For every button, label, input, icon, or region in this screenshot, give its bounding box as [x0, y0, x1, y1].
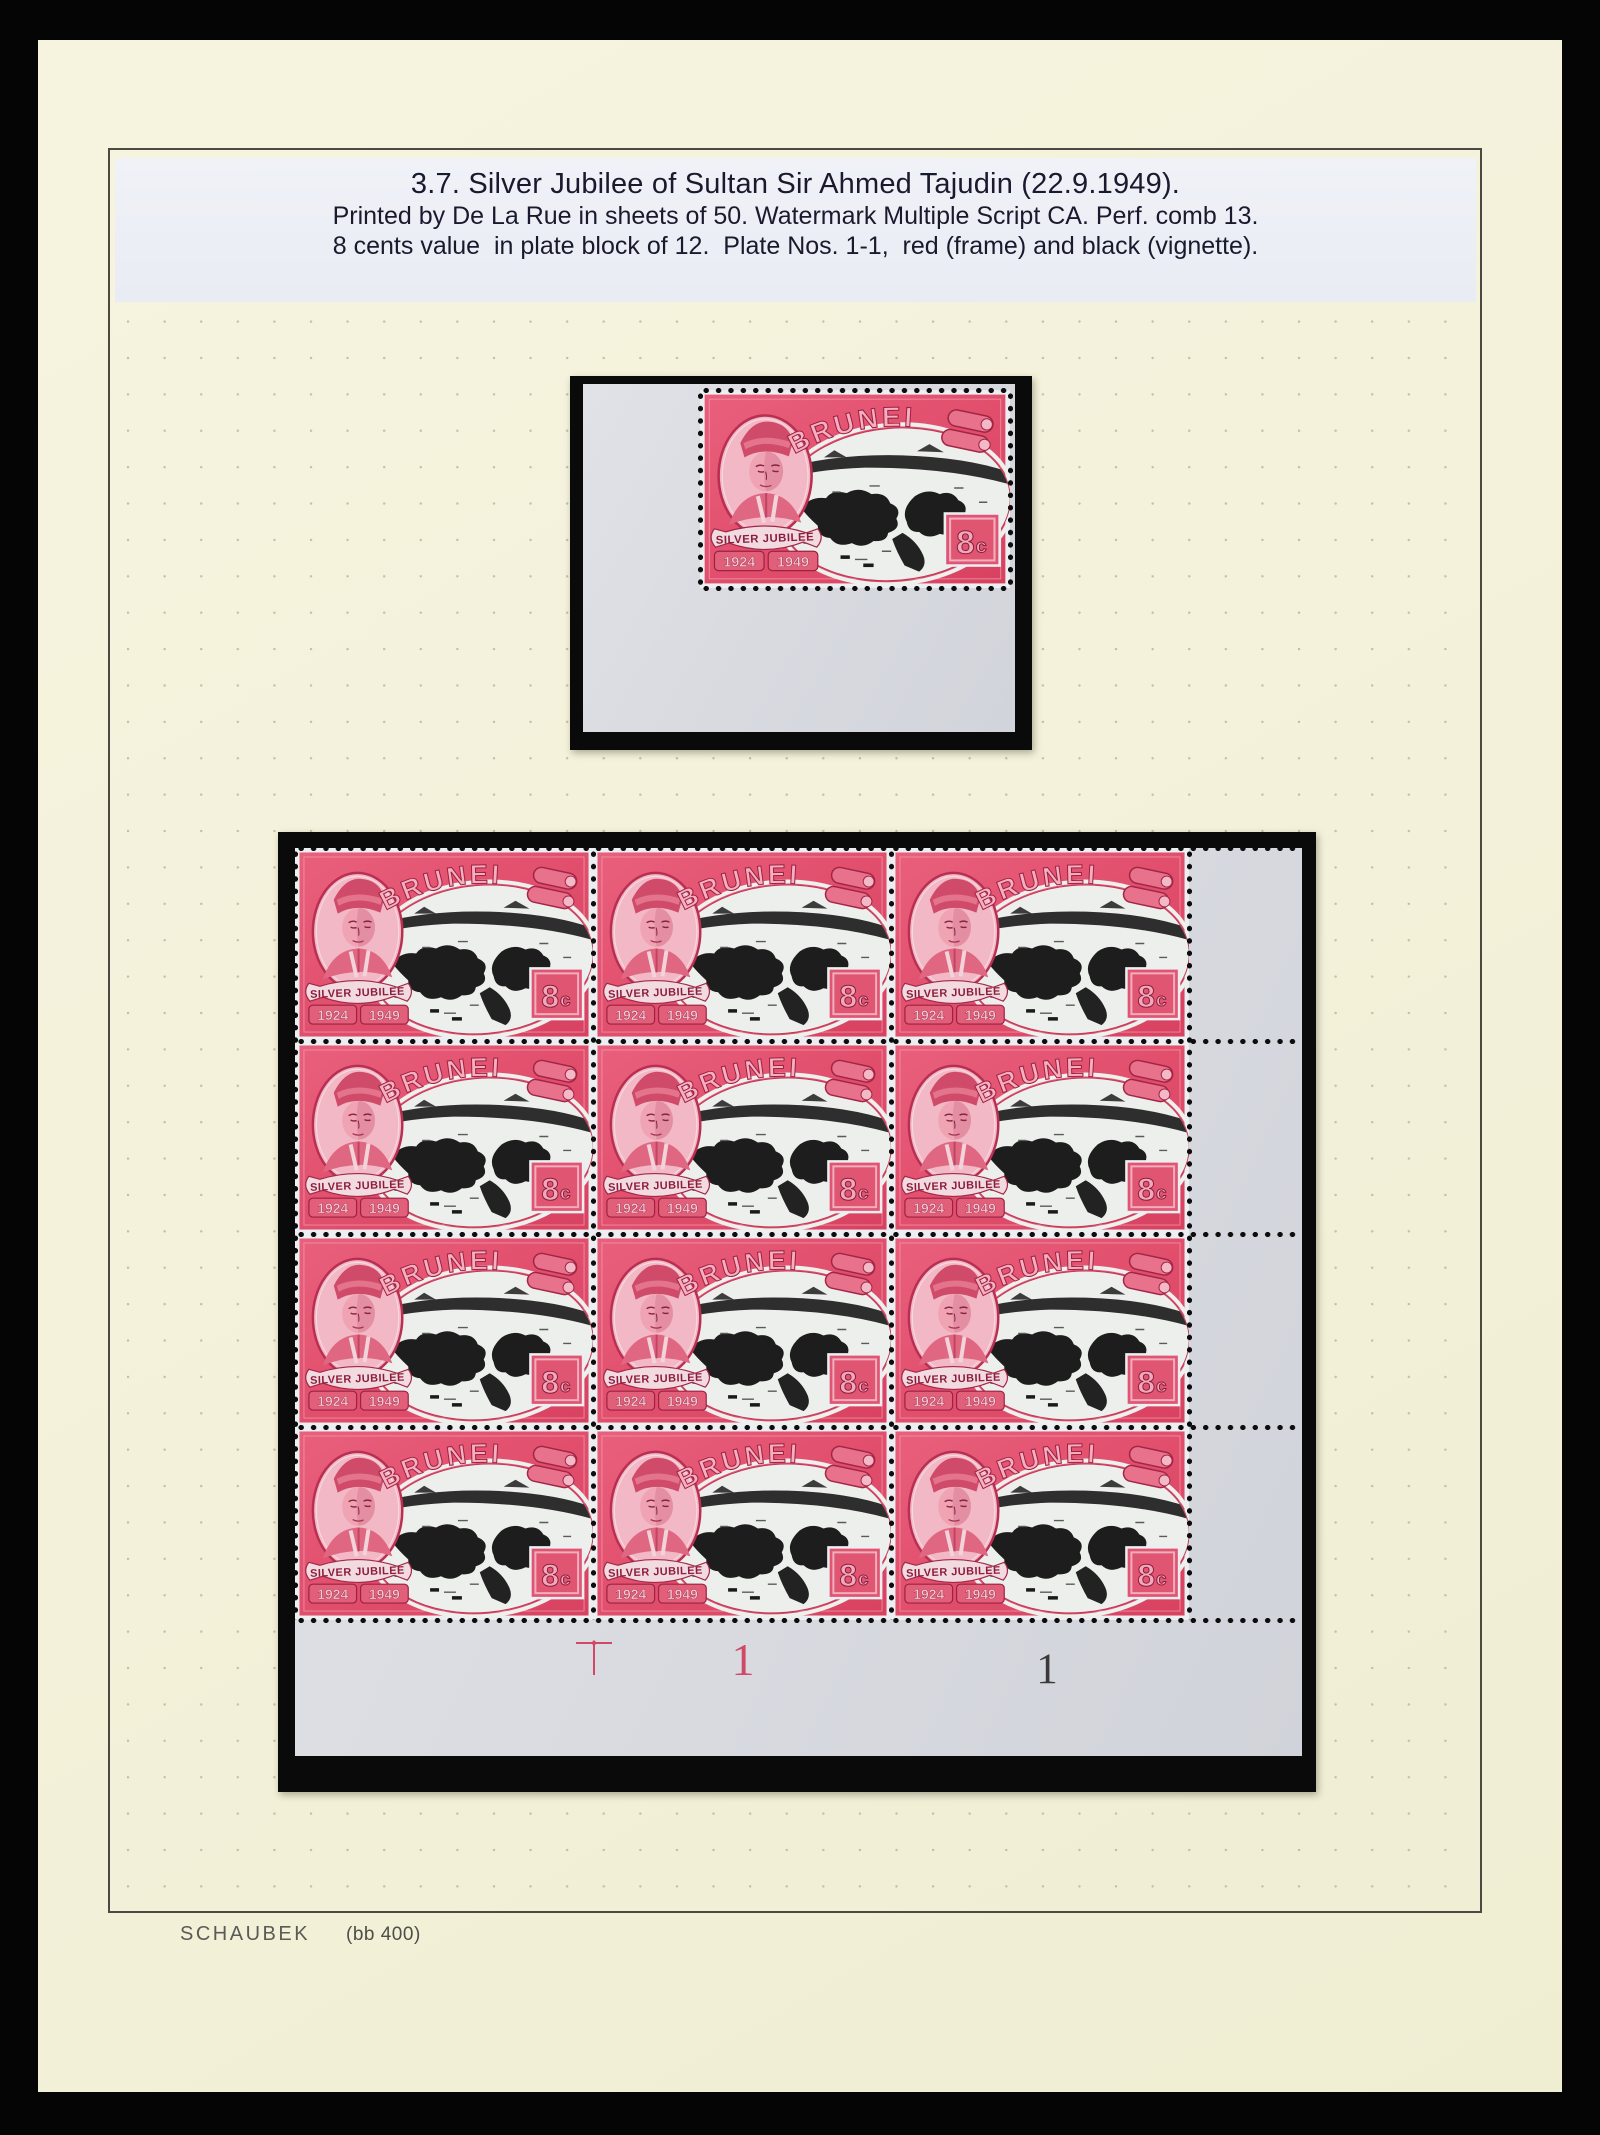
value-box: 8c: [828, 1161, 881, 1212]
plate-block-stamp: BRUNEI SILVER JUBILEE 1924 1949 8c: [593, 1234, 891, 1427]
brunei-silver-jubilee-stamp: BRUNEI SILVER JUBILEE 1924 1949 8c: [593, 1234, 891, 1427]
brunei-silver-jubilee-stamp: BRUNEI SILVER JUBILEE 1924 1949 8c: [891, 1427, 1189, 1620]
header-subtitle-line2: 8 cents value in plate block of 12. Plat…: [115, 231, 1476, 261]
guide-cross-mark: [572, 1631, 616, 1677]
value-box: 8c: [1126, 1161, 1179, 1212]
brunei-silver-jubilee-stamp: BRUNEI SILVER JUBILEE 1924 1949 8c: [295, 1234, 593, 1427]
page-title: 3.7. Silver Jubilee of Sultan Sir Ahmed …: [115, 168, 1476, 201]
single-stamp-mount: BRUNEI SILVER JUBILEE 1924 1949 8c: [570, 376, 1032, 750]
plate-block-stamp: BRUNEI SILVER JUBILEE 1924 1949 8c: [295, 1427, 593, 1620]
album-page: 3.7. Silver Jubilee of Sultan Sir Ahmed …: [38, 40, 1562, 2092]
stamp-year-left: 1924: [615, 1200, 646, 1216]
plate-block-stamp: BRUNEI SILVER JUBILEE 1924 1949 8c: [891, 848, 1189, 1041]
stamp-year-left: 1924: [615, 1007, 646, 1023]
stamp-year-right: 1949: [965, 1200, 996, 1216]
plate-block-stamp: BRUNEI SILVER JUBILEE 1924 1949 8c: [593, 848, 891, 1041]
single-stamp-selvage: BRUNEI SILVER JUBILEE 1924 1949 8c: [583, 384, 1015, 732]
brunei-silver-jubilee-stamp: BRUNEI SILVER JUBILEE 1924 1949 8c: [891, 848, 1189, 1041]
plate-block-stamp: BRUNEI SILVER JUBILEE 1924 1949 8c: [593, 1041, 891, 1234]
stamp-year-left: 1924: [317, 1393, 348, 1409]
value-box: 8c: [1126, 1547, 1179, 1598]
plate-block-stamp: BRUNEI SILVER JUBILEE 1924 1949 8c: [593, 1427, 891, 1620]
value-box: 8c: [1126, 968, 1179, 1019]
brunei-silver-jubilee-stamp: BRUNEI SILVER JUBILEE 1924 1949 8c: [295, 848, 593, 1041]
value-box: 8c: [530, 1161, 583, 1212]
stamp-year-left: 1924: [615, 1393, 646, 1409]
value-box: 8c: [530, 1547, 583, 1598]
stamp-year-right: 1949: [777, 555, 809, 571]
brunei-silver-jubilee-stamp: BRUNEI SILVER JUBILEE 1924 1949 8c: [593, 848, 891, 1041]
value-box: 8c: [828, 1547, 881, 1598]
brunei-silver-jubilee-stamp: BRUNEI SILVER JUBILEE 1924 1949 8c: [891, 1234, 1189, 1427]
value-box: 8c: [1126, 1354, 1179, 1405]
brunei-silver-jubilee-stamp: BRUNEI SILVER JUBILEE 1924 1949 8c: [295, 1427, 593, 1620]
plate-block-stamp: BRUNEI SILVER JUBILEE 1924 1949 8c: [891, 1234, 1189, 1427]
stamp-year-right: 1949: [965, 1586, 996, 1602]
stamp-year-right: 1949: [667, 1586, 698, 1602]
brunei-silver-jubilee-stamp: BRUNEI SILVER JUBILEE 1924 1949 8c: [700, 390, 1010, 588]
stamp-year-left: 1924: [317, 1200, 348, 1216]
brunei-silver-jubilee-stamp: BRUNEI SILVER JUBILEE 1924 1949 8c: [891, 1041, 1189, 1234]
stamp-year-right: 1949: [369, 1586, 400, 1602]
stamp-year-left: 1924: [913, 1393, 944, 1409]
stamp-year-left: 1924: [723, 555, 755, 571]
value-box: 8c: [530, 1354, 583, 1405]
plate-block-paper: BRUNEI SILVER JUBILEE 1924 1949 8c: [295, 848, 1302, 1756]
stamp-year-right: 1949: [965, 1007, 996, 1023]
album-brand-label: SCHAUBEK: [180, 1923, 310, 1946]
header-label-box: 3.7. Silver Jubilee of Sultan Sir Ahmed …: [115, 158, 1476, 302]
header-subtitle-line1: Printed by De La Rue in sheets of 50. Wa…: [115, 201, 1476, 231]
album-ref-label: (bb 400): [346, 1924, 421, 1946]
stamp-year-left: 1924: [317, 1586, 348, 1602]
page-frame: 3.7. Silver Jubilee of Sultan Sir Ahmed …: [108, 148, 1482, 1913]
plate-number-red: 1: [725, 1637, 761, 1683]
stamp-year-left: 1924: [317, 1007, 348, 1023]
stamp-year-left: 1924: [913, 1007, 944, 1023]
plate-block-stamp: BRUNEI SILVER JUBILEE 1924 1949 8c: [891, 1427, 1189, 1620]
stamp-year-right: 1949: [369, 1200, 400, 1216]
value-box: 8c: [945, 513, 1000, 565]
value-box: 8c: [530, 968, 583, 1019]
plate-block-stamp: BRUNEI SILVER JUBILEE 1924 1949 8c: [295, 1234, 593, 1427]
plate-block-mount: BRUNEI SILVER JUBILEE 1924 1949 8c: [278, 832, 1316, 1792]
stamp-year-right: 1949: [667, 1007, 698, 1023]
plate-number-black: 1: [1029, 1648, 1065, 1691]
brunei-silver-jubilee-stamp: BRUNEI SILVER JUBILEE 1924 1949 8c: [593, 1427, 891, 1620]
stamp-year-right: 1949: [369, 1393, 400, 1409]
stamp-year-left: 1924: [615, 1586, 646, 1602]
stamp-year-right: 1949: [965, 1393, 996, 1409]
single-corner-stamp: BRUNEI SILVER JUBILEE 1924 1949 8c: [700, 390, 1010, 588]
stamp-year-right: 1949: [667, 1393, 698, 1409]
stamp-year-right: 1949: [369, 1007, 400, 1023]
value-box: 8c: [828, 968, 881, 1019]
plate-block-grid: BRUNEI SILVER JUBILEE 1924 1949 8c: [295, 848, 1189, 1620]
plate-block-stamp: BRUNEI SILVER JUBILEE 1924 1949 8c: [295, 848, 593, 1041]
stamp-year-left: 1924: [913, 1200, 944, 1216]
value-box: 8c: [828, 1354, 881, 1405]
plate-block-stamp: BRUNEI SILVER JUBILEE 1924 1949 8c: [295, 1041, 593, 1234]
brunei-silver-jubilee-stamp: BRUNEI SILVER JUBILEE 1924 1949 8c: [295, 1041, 593, 1234]
brunei-silver-jubilee-stamp: BRUNEI SILVER JUBILEE 1924 1949 8c: [593, 1041, 891, 1234]
stamp-year-right: 1949: [667, 1200, 698, 1216]
stamp-year-left: 1924: [913, 1586, 944, 1602]
plate-block-stamp: BRUNEI SILVER JUBILEE 1924 1949 8c: [891, 1041, 1189, 1234]
